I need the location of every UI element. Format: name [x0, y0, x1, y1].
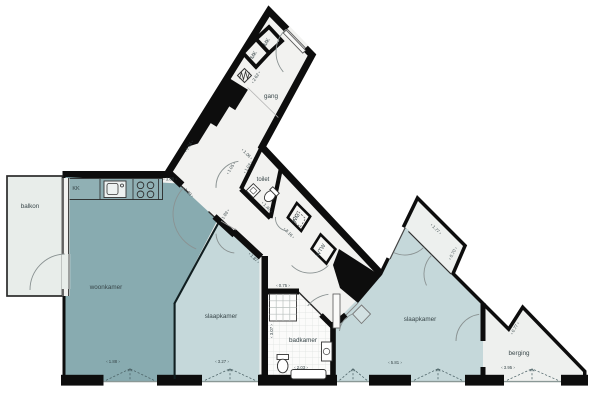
svg-text:gang: gang [264, 93, 279, 100]
svg-text:‹ 2.03 ›: ‹ 2.03 › [294, 365, 308, 370]
svg-text:‹ 3.95 ›: ‹ 3.95 › [501, 365, 515, 370]
svg-text:KK: KK [72, 186, 80, 192]
svg-text:‹ 3.27 ›: ‹ 3.27 › [215, 359, 229, 364]
svg-text:berging: berging [508, 350, 530, 357]
svg-text:woonkamer: woonkamer [89, 284, 123, 291]
svg-text:toilet: toilet [257, 177, 270, 183]
svg-text:‹ 5.81 ›: ‹ 5.81 › [388, 360, 402, 365]
svg-text:‹ 1.88 ›: ‹ 1.88 › [106, 359, 120, 364]
svg-text:slaapkamer: slaapkamer [205, 313, 238, 320]
svg-text:‹ 3.07 ›: ‹ 3.07 › [269, 324, 274, 338]
svg-text:‹ 0.75 ›: ‹ 0.75 › [276, 283, 290, 288]
svg-text:badkamer: badkamer [289, 337, 317, 344]
svg-text:‹ 3.80 ›: ‹ 3.80 › [163, 177, 177, 182]
svg-text:balkon: balkon [21, 203, 40, 210]
svg-text:slaapkamer: slaapkamer [404, 316, 437, 323]
